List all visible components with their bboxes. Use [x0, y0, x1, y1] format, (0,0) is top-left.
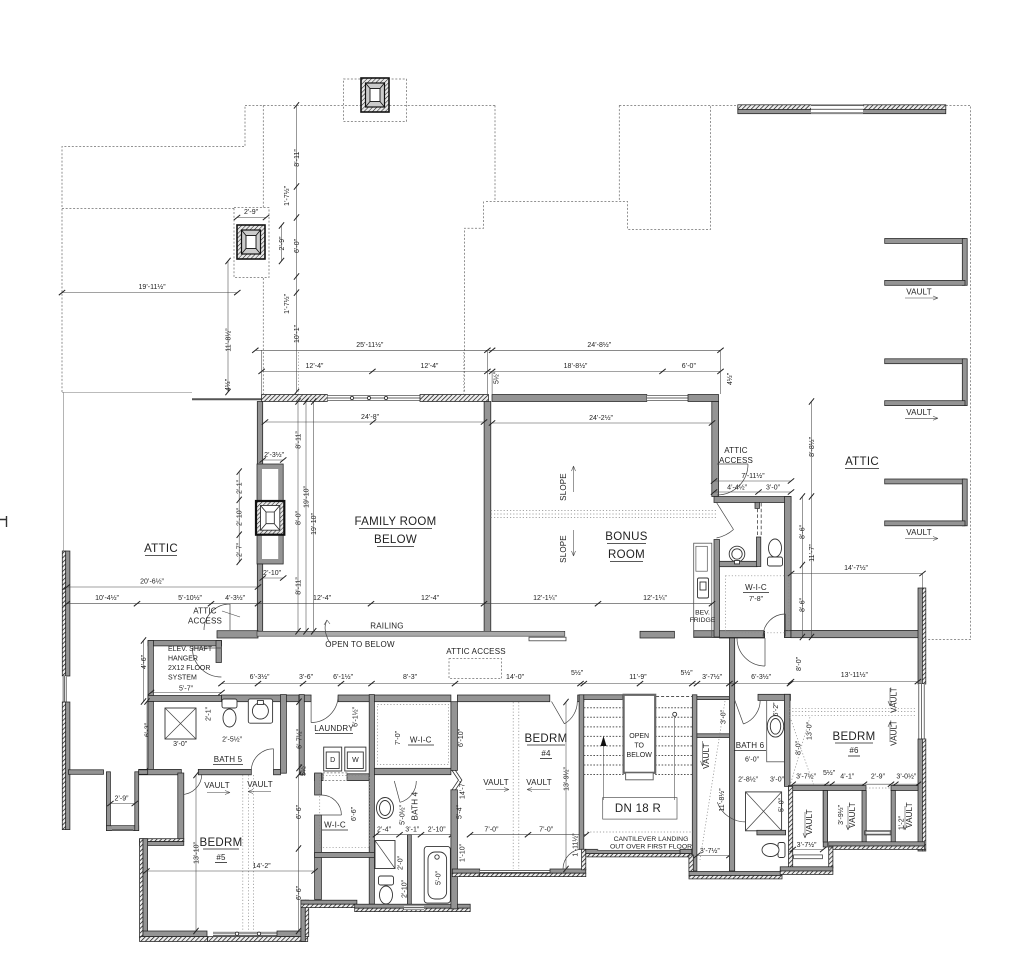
svg-text:5½”: 5½”	[823, 769, 836, 777]
svg-text:25’-11½”: 25’-11½”	[356, 341, 384, 349]
svg-text:VAULT: VAULT	[483, 778, 509, 787]
svg-text:5½”: 5½”	[300, 763, 308, 776]
svg-text:24’-8½”: 24’-8½”	[587, 341, 611, 349]
svg-text:6’-10”: 6’-10”	[458, 728, 465, 747]
svg-text:5’-10½”: 5’-10½”	[178, 594, 202, 602]
svg-text:3’-7½”: 3’-7½”	[797, 841, 818, 849]
svg-text:VAULT: VAULT	[906, 528, 932, 537]
svg-text:8’-11”: 8’-11”	[295, 577, 302, 595]
svg-text:6’-6”: 6’-6”	[296, 804, 303, 819]
svg-text:VAULT: VAULT	[890, 687, 899, 713]
svg-text:1’-11½”: 1’-11½”	[572, 833, 580, 857]
svg-text:LAUNDRY: LAUNDRY	[314, 724, 354, 733]
svg-text:5½”: 5½”	[571, 669, 584, 677]
svg-text:12’-4”: 12’-4”	[421, 595, 440, 602]
svg-text:13’-10”: 13’-10”	[193, 841, 200, 863]
svg-text:3’-1”: 3’-1”	[405, 827, 420, 834]
svg-text:BEDRM: BEDRM	[524, 733, 567, 745]
svg-text:8’-0”: 8’-0”	[295, 510, 302, 525]
svg-text:13’-9½”: 13’-9½”	[562, 766, 570, 790]
svg-text:8’-3”: 8’-3”	[403, 674, 418, 681]
svg-text:2’-10”: 2’-10”	[402, 879, 409, 898]
svg-text:3’-0½”: 3’-0½”	[896, 773, 917, 781]
svg-text:VAULT: VAULT	[526, 778, 552, 787]
svg-text:14’-7½”: 14’-7½”	[844, 564, 868, 572]
svg-text:BATH 5: BATH 5	[214, 755, 243, 764]
svg-text:6’-3½”: 6’-3½”	[250, 673, 271, 681]
svg-text:ATTIC: ATTIC	[724, 446, 748, 455]
svg-text:2’-7”: 2’-7”	[237, 542, 244, 557]
svg-text:6’-7½”: 6’-7½”	[295, 728, 303, 749]
svg-text:RAILING: RAILING	[370, 622, 403, 631]
svg-text:3’-0”: 3’-0”	[173, 741, 188, 748]
svg-text:W: W	[352, 757, 359, 764]
svg-text:VAULT: VAULT	[247, 780, 273, 789]
svg-text:4’-4½”: 4’-4½”	[727, 483, 748, 491]
svg-text:2’-9”: 2’-9”	[279, 236, 286, 251]
svg-text:7’-0”: 7’-0”	[484, 827, 499, 834]
svg-text:8’-8½”: 8’-8½”	[808, 436, 816, 457]
svg-text:8’-6”: 8’-6”	[800, 524, 807, 539]
svg-text:1’-7½”: 1’-7½”	[283, 293, 291, 314]
svg-text:ACCESS: ACCESS	[719, 456, 753, 465]
svg-text:24’-2½”: 24’-2½”	[589, 414, 613, 422]
svg-text:D: D	[330, 757, 335, 764]
svg-text:FAMILY ROOM: FAMILY ROOM	[354, 516, 436, 528]
svg-text:ATTIC ACCESS: ATTIC ACCESS	[446, 647, 506, 656]
svg-text:2’-1”: 2’-1”	[206, 706, 213, 721]
svg-text:10’-4½”: 10’-4½”	[95, 594, 119, 602]
svg-text:OPEN: OPEN	[629, 733, 649, 740]
svg-text:ATTIC: ATTIC	[144, 543, 178, 555]
svg-text:1’-7½”: 1’-7½”	[283, 185, 291, 206]
svg-text:6’-0”: 6’-0”	[745, 757, 760, 764]
svg-text:VAULT: VAULT	[905, 802, 914, 828]
svg-text:6’-6”: 6’-6”	[351, 806, 358, 821]
svg-text:13’-0”: 13’-0”	[807, 721, 814, 740]
svg-text:7’-0”: 7’-0”	[539, 827, 554, 834]
svg-text:CANTILEVER LANDING: CANTILEVER LANDING	[614, 836, 689, 843]
svg-text:3’-0”: 3’-0”	[766, 484, 781, 491]
svg-text:4’-6”: 4’-6”	[141, 654, 148, 669]
svg-text:8’-6”: 8’-6”	[800, 597, 807, 612]
svg-text:#4: #4	[541, 749, 551, 758]
svg-text:BATH 4: BATH 4	[411, 791, 420, 820]
svg-text:10’-1”: 10’-1”	[294, 324, 301, 343]
svg-text:8’-11”: 8’-11”	[295, 431, 302, 449]
svg-text:HANGER: HANGER	[168, 656, 198, 663]
svg-text:11’-9”: 11’-9”	[629, 674, 647, 681]
svg-text:6’-1½”: 6’-1½”	[352, 706, 360, 727]
svg-text:2’-5½”: 2’-5½”	[222, 736, 243, 744]
svg-text:ROOM: ROOM	[608, 549, 645, 561]
svg-text:5’-0½”: 5’-0½”	[399, 804, 407, 825]
svg-text:SLOPE: SLOPE	[559, 535, 568, 563]
svg-text:11’-8½”: 11’-8½”	[224, 328, 232, 352]
svg-text:14’-0”: 14’-0”	[506, 674, 525, 681]
svg-text:5’-4”: 5’-4”	[457, 804, 464, 819]
svg-text:BELOW: BELOW	[627, 752, 653, 759]
svg-text:11’-8½”: 11’-8½”	[718, 788, 726, 812]
svg-text:5’-0”: 5’-0”	[779, 797, 786, 812]
svg-text:19’-10”: 19’-10”	[303, 485, 310, 507]
svg-text:BELOW: BELOW	[374, 534, 417, 546]
svg-text:6’-1½”: 6’-1½”	[333, 673, 354, 681]
svg-text:2’-9”: 2’-9”	[871, 774, 886, 781]
svg-text:2’-9”: 2’-9”	[114, 796, 129, 803]
svg-text:20’-6½”: 20’-6½”	[140, 578, 164, 586]
svg-text:3’-0”: 3’-0”	[720, 709, 727, 724]
svg-text:8’-0”: 8’-0”	[796, 740, 803, 755]
svg-text:18’-8½”: 18’-8½”	[564, 362, 588, 370]
svg-text:VAULT: VAULT	[702, 743, 711, 769]
svg-text:6’-3½”: 6’-3½”	[751, 673, 772, 681]
svg-text:7’-0”: 7’-0”	[395, 730, 402, 745]
svg-text:14’-2”: 14’-2”	[253, 863, 272, 870]
svg-text:ELEV. SHAFT: ELEV. SHAFT	[168, 646, 213, 653]
svg-text:W-I-C: W-I-C	[324, 821, 346, 830]
svg-text:OPEN TO BELOW: OPEN TO BELOW	[325, 640, 395, 649]
svg-text:W-I-C: W-I-C	[410, 736, 432, 745]
svg-text:SLOPE: SLOPE	[559, 473, 568, 501]
svg-text:6’-0”: 6’-0”	[682, 363, 697, 370]
svg-text:14’-7”: 14’-7”	[460, 780, 467, 799]
svg-text:VAULT: VAULT	[204, 781, 230, 790]
svg-text:19’-11½”: 19’-11½”	[138, 283, 166, 291]
svg-text:4’-3½”: 4’-3½”	[225, 594, 246, 602]
svg-text:3’-0”: 3’-0”	[770, 777, 785, 784]
svg-text:2’-10”: 2’-10”	[263, 570, 282, 577]
svg-text:VAULT: VAULT	[848, 802, 857, 828]
svg-text:2’-0”: 2’-0”	[397, 855, 404, 870]
svg-text:7’-11½”: 7’-11½”	[741, 472, 765, 480]
svg-text:11’-7”: 11’-7”	[809, 544, 816, 562]
svg-text:BEDRM: BEDRM	[832, 731, 875, 743]
svg-text:5’-7”: 5’-7”	[179, 686, 194, 693]
svg-text:FRIDGE: FRIDGE	[690, 617, 716, 624]
svg-text:3’-7½”: 3’-7½”	[796, 773, 817, 781]
svg-text:#5: #5	[216, 853, 226, 862]
svg-text:19’-10”: 19’-10”	[311, 512, 318, 534]
svg-text:5’-0”: 5’-0”	[436, 870, 443, 885]
svg-text:2’-10”: 2’-10”	[428, 827, 447, 834]
svg-text:5½”: 5½”	[493, 371, 501, 384]
svg-text:13’-11½”: 13’-11½”	[841, 671, 869, 679]
svg-text:12’-4”: 12’-4”	[305, 363, 324, 370]
svg-text:#6: #6	[849, 746, 859, 755]
svg-text:W-I-C: W-I-C	[745, 583, 767, 592]
svg-text:VAULT: VAULT	[805, 809, 814, 835]
svg-text:12’-1¼”: 12’-1¼”	[533, 595, 557, 602]
svg-text:12’-4”: 12’-4”	[313, 595, 332, 602]
svg-text:5½”: 5½”	[680, 669, 693, 677]
svg-text:24’-8”: 24’-8”	[361, 414, 380, 421]
svg-text:VAULT: VAULT	[906, 288, 932, 297]
svg-text:3’-6”: 3’-6”	[299, 674, 314, 681]
svg-text:12’-1¼”: 12’-1¼”	[643, 595, 667, 602]
svg-text:BEV.: BEV.	[695, 610, 710, 617]
svg-text:4½”: 4½”	[224, 378, 232, 391]
svg-text:2’-4”: 2’-4”	[377, 827, 392, 834]
svg-text:2’-3½”: 2’-3½”	[264, 451, 285, 459]
svg-text:6’-2”: 6’-2”	[773, 702, 780, 717]
svg-text:ATTIC: ATTIC	[845, 456, 879, 468]
svg-text:2X12 FLOOR: 2X12 FLOOR	[168, 665, 210, 672]
svg-text:ATTIC: ATTIC	[193, 607, 217, 616]
svg-text:6’-6”: 6’-6”	[296, 885, 303, 900]
svg-text:8’-0”: 8’-0”	[796, 656, 803, 671]
svg-text:7’-8”: 7’-8”	[749, 596, 764, 603]
svg-text:BATH 6: BATH 6	[736, 741, 765, 750]
svg-text:6’-0”: 6’-0”	[294, 238, 301, 253]
svg-text:BONUS: BONUS	[605, 531, 647, 543]
svg-text:1’-2”: 1’-2”	[899, 815, 906, 830]
svg-text:3’-7½”: 3’-7½”	[702, 673, 723, 681]
svg-text:3’-7½”: 3’-7½”	[700, 847, 721, 855]
svg-text:8’-11”: 8’-11”	[294, 149, 301, 167]
svg-text:2’-10”: 2’-10”	[237, 507, 244, 526]
svg-text:1’-10”: 1’-10”	[459, 843, 466, 862]
svg-text:4’-1”: 4’-1”	[840, 774, 855, 781]
svg-text:12’-4”: 12’-4”	[420, 363, 439, 370]
svg-text:ACCESS: ACCESS	[188, 617, 222, 626]
svg-text:SYSTEM: SYSTEM	[168, 675, 197, 682]
svg-text:VAULT: VAULT	[906, 408, 932, 417]
svg-text:2’-9”: 2’-9”	[244, 209, 259, 216]
svg-text:2’-8½”: 2’-8½”	[738, 776, 759, 784]
svg-text:TO: TO	[634, 743, 644, 750]
svg-text:2’-1”: 2’-1”	[237, 479, 244, 494]
svg-text:4½”: 4½”	[726, 372, 734, 385]
svg-text:3’-9½”: 3’-9½”	[837, 804, 845, 825]
svg-text:BEDRM: BEDRM	[199, 837, 242, 849]
svg-text:DN 18 R: DN 18 R	[615, 803, 661, 815]
